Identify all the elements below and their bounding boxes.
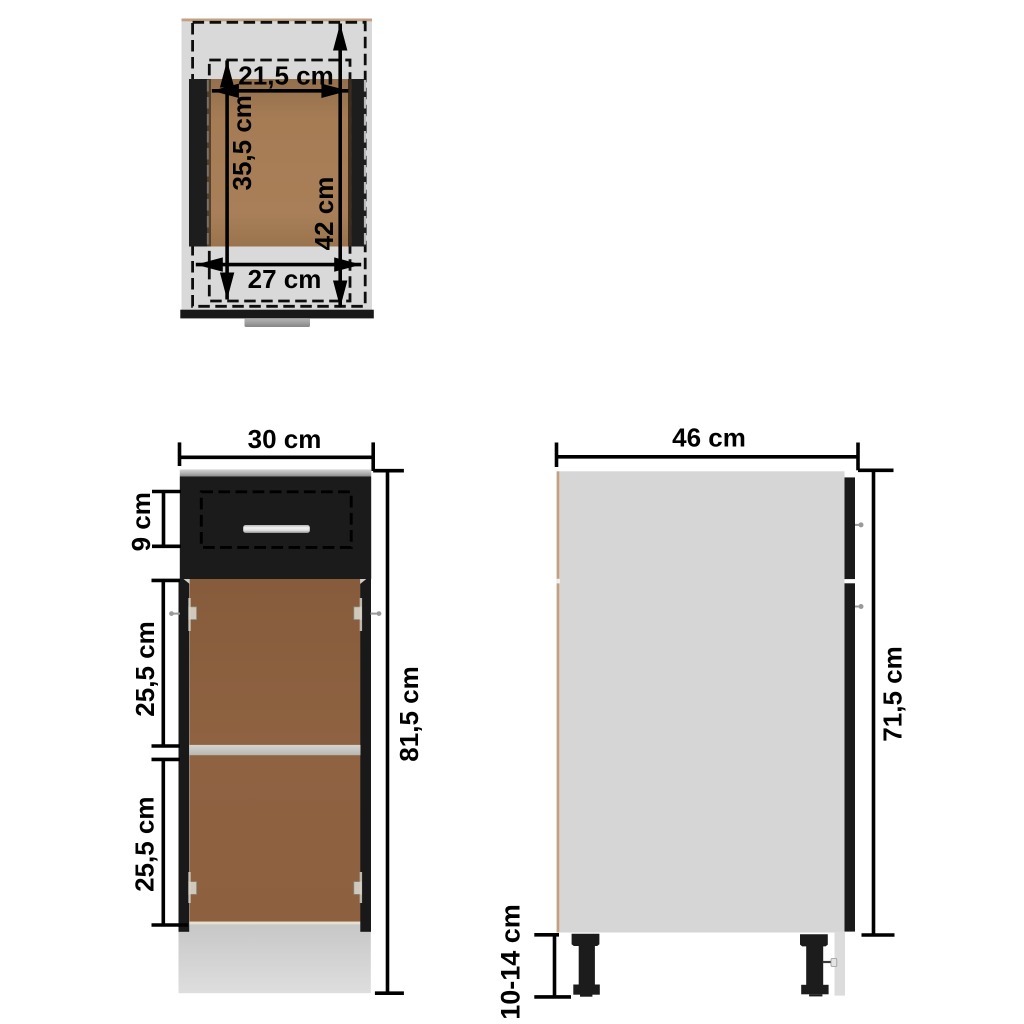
svg-text:25,5 cm: 25,5 cm xyxy=(130,621,160,716)
svg-text:10-14 cm: 10-14 cm xyxy=(496,904,526,1020)
svg-text:27 cm: 27 cm xyxy=(248,264,322,294)
svg-text:25,5 cm: 25,5 cm xyxy=(130,796,160,891)
svg-text:35,5 cm: 35,5 cm xyxy=(227,95,257,190)
svg-text:42 cm: 42 cm xyxy=(309,177,339,251)
svg-text:46 cm: 46 cm xyxy=(672,423,746,453)
svg-text:21,5 cm: 21,5 cm xyxy=(238,61,333,91)
svg-text:71,5 cm: 71,5 cm xyxy=(878,646,908,741)
svg-text:81,5 cm: 81,5 cm xyxy=(394,666,424,761)
svg-text:30 cm: 30 cm xyxy=(248,424,322,454)
svg-text:9 cm: 9 cm xyxy=(126,492,156,551)
